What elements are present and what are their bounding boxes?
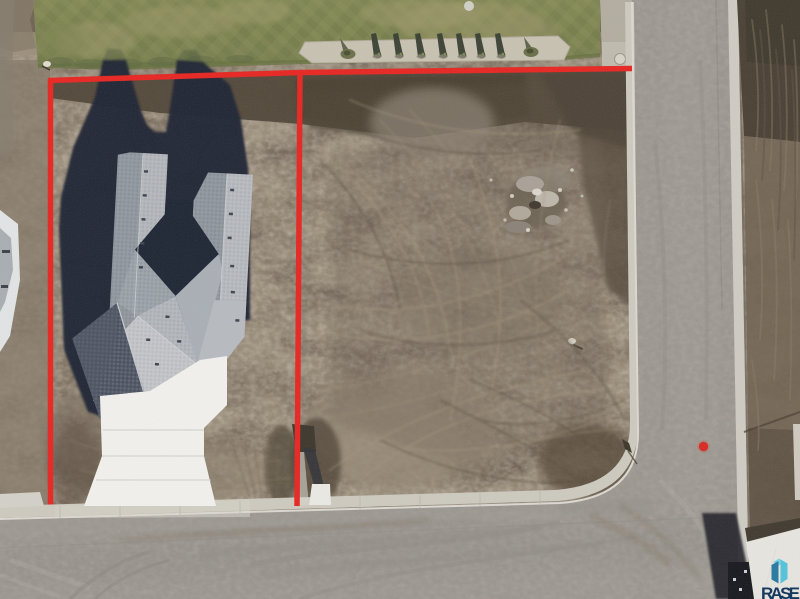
svg-text:RASE: RASE [761, 584, 800, 599]
